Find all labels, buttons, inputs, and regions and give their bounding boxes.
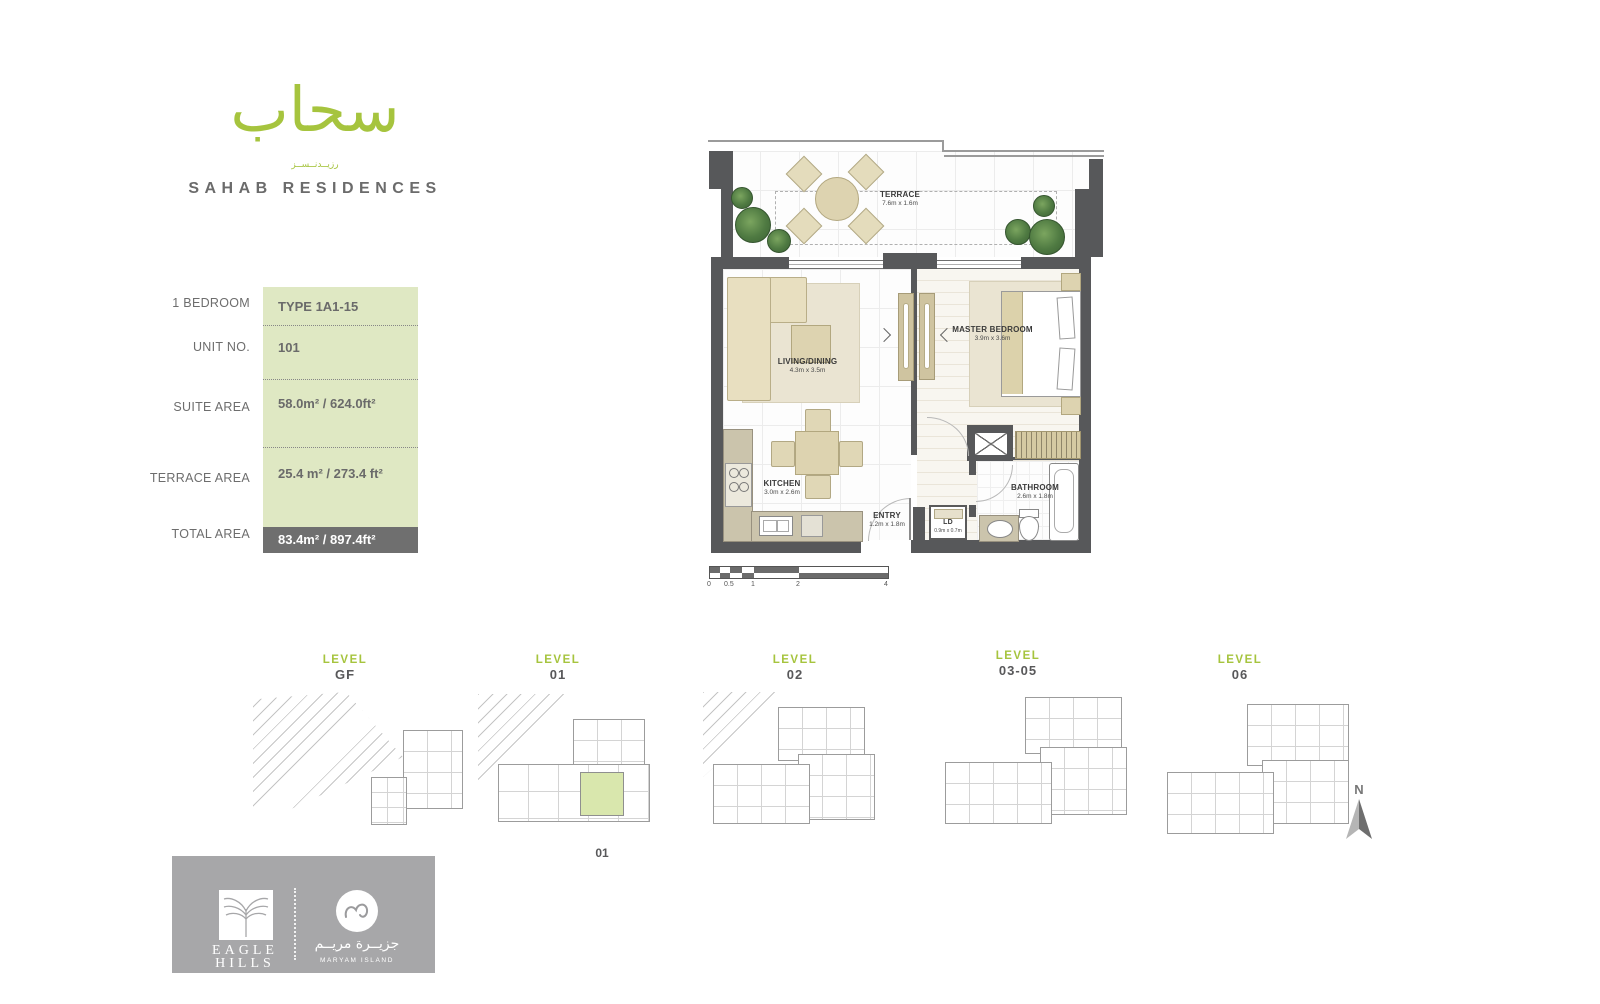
scale-bar — [709, 566, 889, 579]
vanity-sink — [987, 520, 1013, 538]
wall-segment — [911, 540, 929, 553]
room-label-terrace: TERRACE 7.6m x 1.6m — [845, 190, 955, 208]
building-outline — [1025, 697, 1122, 754]
level-header-03-05: LEVEL 03-05 — [958, 650, 1078, 678]
bathroom-vanity — [979, 515, 1019, 542]
building-outline — [1040, 747, 1127, 815]
bed — [1001, 291, 1081, 397]
scale-segment — [730, 567, 742, 573]
dining-table — [795, 431, 839, 475]
nightstand — [1061, 397, 1081, 415]
brand-name: SAHAB RESIDENCES — [150, 180, 480, 198]
pillow — [1057, 347, 1076, 390]
info-value-type: TYPE 1A1-15 — [263, 287, 418, 326]
level-thumbnail-02 — [703, 692, 895, 844]
highlighted-unit-label: 01 — [562, 846, 642, 860]
dining-chair — [805, 409, 831, 433]
building-outline — [1247, 704, 1349, 766]
floor-plan: TERRACE 7.6m x 1.6m LIVING/DINING 4.3m x… — [695, 135, 1110, 560]
building-outline — [945, 762, 1052, 824]
level-header-gf: LEVEL GF — [285, 654, 405, 682]
plant — [1033, 195, 1055, 217]
sink-basin — [777, 520, 789, 532]
burner — [739, 468, 749, 478]
wall-segment — [711, 257, 723, 553]
bathtub — [1049, 463, 1079, 541]
info-label-bedroom: 1 BEDROOM — [100, 296, 250, 310]
building-outline — [778, 707, 865, 761]
info-label-total-area: TOTAL AREA — [100, 527, 250, 541]
maryam-island-arabic: جزيــرة مريــم — [307, 936, 407, 952]
window — [937, 260, 1021, 269]
footer-divider — [294, 888, 296, 960]
wall-segment — [709, 151, 733, 189]
level-thumbnail-06 — [1157, 692, 1365, 850]
north-arrow-icon — [1344, 797, 1374, 841]
wall-segment — [969, 505, 976, 517]
info-value-unit-no: 101 — [263, 326, 418, 380]
scale-segment — [799, 573, 888, 579]
window — [789, 260, 883, 269]
level-header-02: LEVEL 02 — [735, 654, 855, 682]
maryam-island-name: MARYAM ISLAND — [307, 957, 407, 964]
plant — [1029, 219, 1065, 255]
dining-chair — [839, 441, 863, 467]
kitchen-appliance — [801, 515, 823, 537]
info-value-suite-area: 58.0m² / 624.0ft² — [263, 380, 418, 448]
scale-label: 0 — [707, 581, 711, 588]
scale-label: 2 — [796, 581, 800, 588]
brand-arabic-subtitle: رزيــدنــســز — [165, 160, 465, 170]
building-outline — [1167, 772, 1274, 834]
eagle-hills-emblem — [219, 890, 273, 940]
building-outline — [371, 777, 407, 825]
info-values-panel: TYPE 1A1-15 101 58.0m² / 624.0ft² 25.4 m… — [263, 287, 418, 527]
eagle-hills-wordmark: EAGLE HILLS — [190, 944, 300, 970]
parapet-line — [708, 140, 944, 142]
plant — [1005, 219, 1031, 245]
room-label-bathroom: BATHROOM 2.6m x 1.8m — [993, 483, 1077, 501]
north-compass: N — [1342, 782, 1376, 846]
wall-segment — [1089, 159, 1103, 191]
info-value-total-area: 83.4m² / 897.4ft² — [263, 527, 418, 553]
plant — [767, 229, 791, 253]
level-thumbnail-01 — [478, 694, 668, 846]
sliding-door-panel — [898, 293, 914, 381]
parapet-line — [944, 155, 1104, 157]
wall-segment — [711, 257, 789, 269]
level-thumbnail-03-05 — [930, 687, 1140, 840]
building-outline — [573, 719, 645, 767]
parapet-line — [944, 150, 1104, 152]
brochure-page: سحاب رزيــدنــســز SAHAB RESIDENCES 1 BE… — [0, 0, 1600, 1004]
sink-basin — [763, 520, 777, 532]
wall-segment — [883, 253, 937, 269]
room-label-kitchen: KITCHEN 3.0m x 2.6m — [737, 479, 827, 497]
scale-segment — [754, 567, 799, 573]
scale-label: 1 — [751, 581, 755, 588]
brand-arabic-calligraphy: سحاب — [165, 70, 465, 151]
info-label-suite-area: SUITE AREA — [100, 400, 250, 414]
building-outline — [403, 730, 463, 809]
room-label-master-bedroom: MASTER BEDROOM 3.9m x 3.6m — [935, 325, 1050, 343]
maryam-island-emblem — [336, 890, 378, 932]
nightstand — [1061, 273, 1081, 291]
sliding-door-slot — [924, 303, 930, 369]
info-value-terrace-area: 25.4 m² / 273.4 ft² — [263, 448, 418, 527]
dining-chair — [771, 441, 795, 467]
info-label-terrace-area: TERRACE AREA — [100, 471, 250, 485]
burner — [729, 468, 739, 478]
sliding-door-slot — [903, 303, 909, 369]
wardrobe — [1015, 431, 1081, 459]
scale-label: 4 — [884, 581, 888, 588]
sliding-door-panel — [919, 293, 935, 380]
palm-icon — [219, 890, 273, 940]
level-header-06: LEVEL 06 — [1180, 654, 1300, 682]
kitchen-sink — [759, 516, 793, 536]
footer-logo-panel: EAGLE HILLS جزيــرة مريــم MARYAM ISLAND — [172, 856, 435, 973]
maryam-monogram-icon — [336, 890, 378, 932]
building-outline — [713, 764, 810, 824]
washer — [934, 509, 963, 519]
room-label-entry: ENTRY 1.2m x 1.8m — [847, 511, 927, 529]
shaft-duct — [973, 431, 1009, 457]
north-label: N — [1342, 782, 1376, 797]
room-label-living: LIVING/DINING 4.3m x 3.5m — [750, 357, 865, 375]
sofa — [727, 277, 771, 401]
scale-segment — [720, 573, 730, 579]
scale-segment — [710, 567, 720, 573]
highlighted-unit — [580, 772, 624, 816]
building-outline — [1262, 760, 1349, 824]
wall-segment — [969, 461, 976, 475]
level-thumbnail-gf — [253, 692, 501, 847]
scale-segment — [742, 573, 754, 579]
scale-label: 0.5 — [724, 581, 734, 588]
wall-segment — [1075, 189, 1103, 257]
plant — [735, 207, 771, 243]
info-label-unit-no: UNIT NO. — [100, 340, 250, 354]
wall-segment — [1021, 257, 1091, 269]
building-outline — [498, 764, 650, 822]
plant — [731, 187, 753, 209]
pillow — [1057, 296, 1076, 339]
level-header-01: LEVEL 01 — [498, 654, 618, 682]
room-label-laundry: LD 0.9m x 0.7m — [929, 519, 967, 534]
